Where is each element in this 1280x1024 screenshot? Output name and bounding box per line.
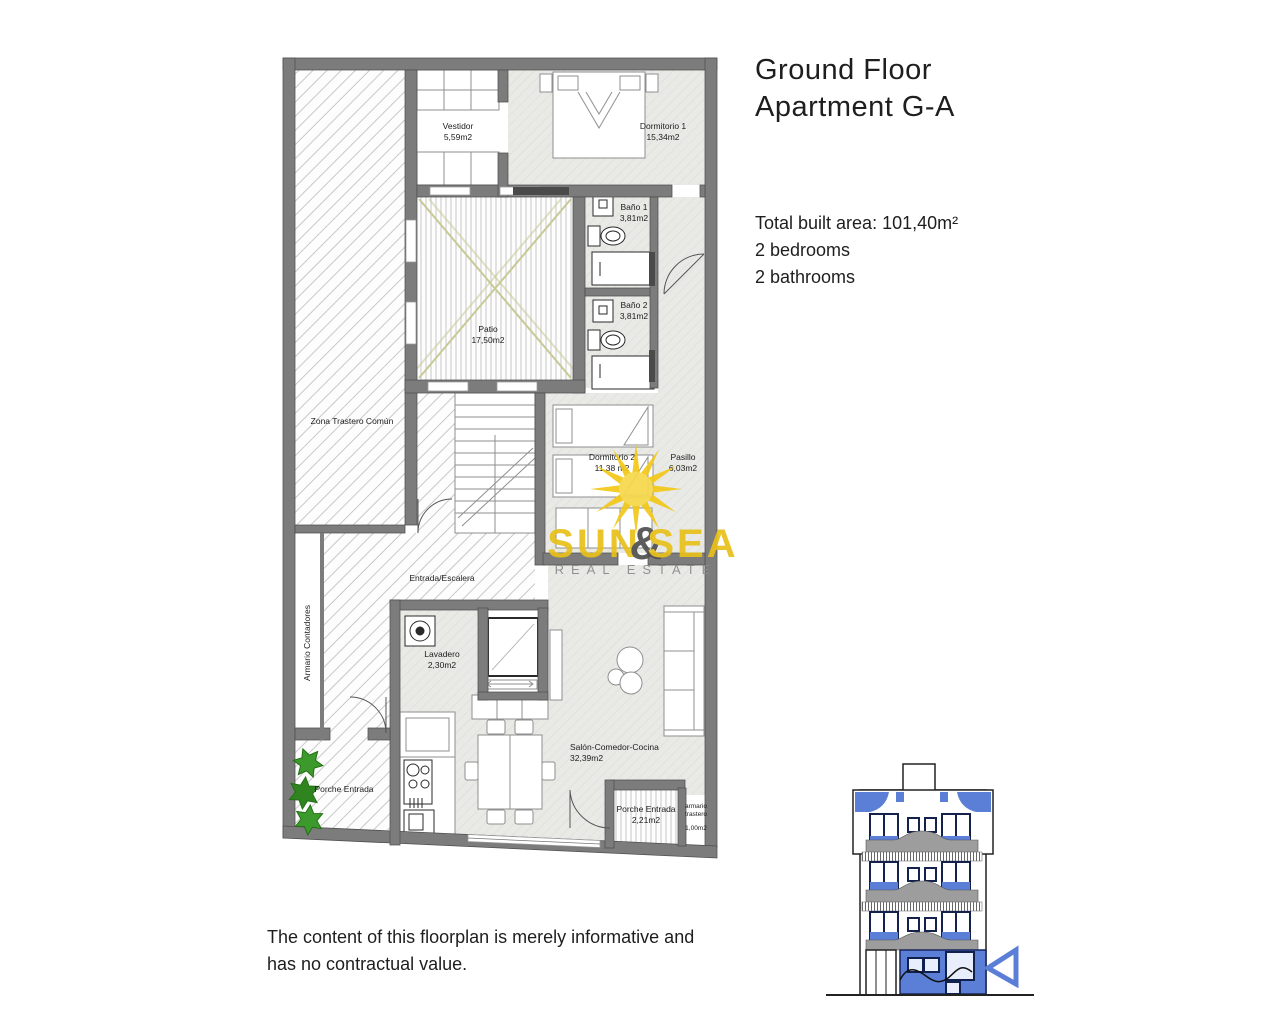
label-vestidor-area: 5,59m2 <box>444 132 473 142</box>
label-zona-trastero: Zona Trastero Común <box>311 416 394 426</box>
label-lavadero-area: 2,30m2 <box>428 660 457 670</box>
label-patio-area: 17,50m2 <box>471 335 504 345</box>
label-vestidor: Vestidor <box>443 121 474 131</box>
location-flag-icon <box>988 950 1016 984</box>
label-armario-contadores: Armario Contadores <box>302 605 312 681</box>
label-armario-trastero-area: 1,00m2 <box>685 825 707 832</box>
building-chimney <box>903 764 935 792</box>
page-title: Ground Floor Apartment G-A <box>755 52 955 126</box>
bathrooms-count: 2 bathrooms <box>755 264 958 291</box>
disclaimer-line2: has no contractual value. <box>267 951 694 978</box>
label-bano1-area: 3,81m2 <box>620 213 649 223</box>
bedrooms-count: 2 bedrooms <box>755 237 958 264</box>
label-patio: Patio <box>478 324 498 334</box>
label-dormitorio1: Dormitorio 1 <box>640 121 687 131</box>
dining-table <box>465 720 555 824</box>
floorplan-page: Vestidor 5,59m2 Dormitorio 1 15,34m2 Bañ… <box>0 0 1280 1024</box>
disclaimer-line1: The content of this floorplan is merely … <box>267 924 694 951</box>
label-porche-lateral: Porche Entrada <box>314 784 373 794</box>
sofa <box>664 606 704 736</box>
double-bed <box>540 72 658 158</box>
floorplan-drawing: Vestidor 5,59m2 Dormitorio 1 15,34m2 Bañ… <box>0 0 1280 1024</box>
side-table <box>617 647 643 673</box>
label-porche: Porche Entrada <box>616 804 675 814</box>
label-armario-trastero-2: trastero <box>685 811 707 818</box>
disclaimer-text: The content of this floorplan is merely … <box>267 924 694 978</box>
label-salon-area: 32,39m2 <box>570 753 603 763</box>
washing-machine <box>405 616 435 646</box>
title-line1: Ground Floor <box>755 52 955 89</box>
label-pasillo: Pasillo <box>670 452 695 462</box>
entrance-door <box>866 950 896 995</box>
label-entrada-escalera: Entrada/Escalera <box>409 573 474 583</box>
kitchen-counter <box>400 712 455 837</box>
entrada-floor <box>322 533 535 600</box>
total-built-area: Total built area: 101,40m² <box>755 210 958 237</box>
title-line2: Apartment G-A <box>755 89 955 126</box>
logo-word-sun: SUN <box>547 522 640 566</box>
stairs <box>455 393 535 533</box>
zona-trastero-floor <box>295 70 405 525</box>
logo-word-sea: SEA <box>647 522 738 566</box>
ground-floor-highlight <box>866 950 1016 995</box>
label-dormitorio1-area: 15,34m2 <box>646 132 679 142</box>
building-elevation <box>826 764 1034 995</box>
label-porche-area: 2,21m2 <box>632 815 661 825</box>
side-table <box>620 672 642 694</box>
label-salon: Salón-Comedor-Cocina <box>570 742 659 752</box>
attic-awning-mid <box>940 792 948 802</box>
apartment-summary: Total built area: 101,40m² 2 bedrooms 2 … <box>755 210 958 291</box>
pasillo-floor <box>658 197 705 553</box>
sun-core <box>619 472 653 506</box>
entrada-corridor-floor <box>322 600 390 740</box>
label-bano2: Baño 2 <box>621 300 648 310</box>
label-bano1: Baño 1 <box>621 202 648 212</box>
elevator <box>483 618 538 689</box>
label-armario-trastero-1: armario <box>685 803 707 810</box>
attic-awning-mid <box>896 792 904 802</box>
label-dormitorio2: Dormitorio 2 <box>589 452 636 462</box>
logo-tagline: REAL ESTATE <box>555 562 718 577</box>
label-bano2-area: 3,81m2 <box>620 311 649 321</box>
label-lavadero: Lavadero <box>424 649 460 659</box>
tv-unit <box>550 630 562 700</box>
